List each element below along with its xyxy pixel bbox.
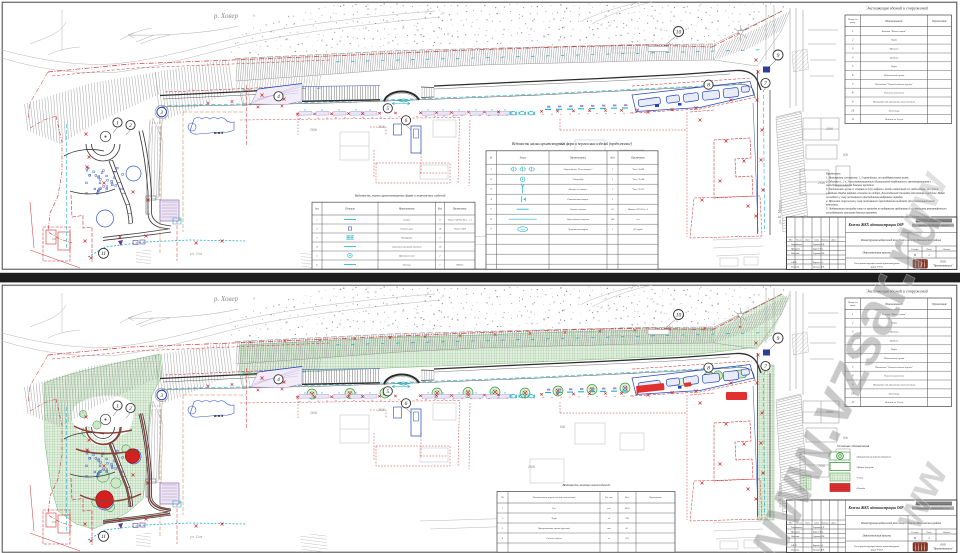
svg-text:Подпись: Подпись bbox=[820, 521, 828, 524]
svg-text:Памятник "Освобождение города": Памятник "Освобождение города" bbox=[874, 83, 914, 86]
svg-text:Скамья садовая: Скамья садовая bbox=[570, 208, 586, 211]
svg-text:"Проектмонтаж": "Проектмонтаж" bbox=[933, 547, 955, 550]
svg-text:- Газон: - Газон bbox=[856, 477, 864, 480]
svg-text:1: 1 bbox=[502, 507, 503, 510]
svg-text:ООО: ООО bbox=[940, 261, 946, 264]
svg-text:Позиция: Позиция bbox=[344, 208, 355, 211]
svg-text:500,00 кв: 500,00 кв bbox=[456, 265, 464, 267]
svg-text:1610: 1610 bbox=[625, 507, 631, 510]
svg-text:Ведомость малых архитектурных: Ведомость малых архитектурных форм и пер… bbox=[512, 141, 633, 146]
svg-text:№п: №п bbox=[314, 208, 319, 211]
svg-text:Примечание: Примечание bbox=[931, 303, 947, 306]
svg-text:Ведомость малых архитектурных: Ведомость малых архитектурных форм и пер… bbox=[355, 193, 446, 198]
svg-text:41: 41 bbox=[626, 527, 628, 530]
svg-text:Примечание: Примечание bbox=[648, 496, 661, 499]
svg-text:ООО: ООО bbox=[940, 544, 946, 547]
svg-text:шт: шт bbox=[607, 527, 611, 530]
svg-text:Нач.отд.: Нач.отд. bbox=[790, 252, 800, 255]
svg-text:Кол.уч: Кол.уч bbox=[795, 239, 801, 241]
svg-text:Пояснительная записка: Пояснительная записка bbox=[862, 535, 892, 538]
svg-text:"Росс" №133: "Росс" №133 bbox=[632, 188, 645, 191]
svg-text:Фонарь со светил.: Фонарь со светил. bbox=[569, 188, 588, 191]
svg-text:Контрробка: Контрробка bbox=[400, 237, 412, 240]
svg-text:Проверил: Проверил bbox=[790, 248, 800, 250]
svg-text:Лестница: Лестница bbox=[888, 109, 900, 112]
svg-text:Кафе: Кафе bbox=[890, 39, 898, 42]
svg-text:Барсов В.А.: Барсов В.А. bbox=[812, 247, 824, 250]
svg-text:1. Нивелировка составлена: 1,: 1. Нивелировка составлена: 1, 3 проводил… bbox=[826, 176, 909, 179]
svg-text:Цветочный стол: Цветочный стол bbox=[398, 255, 414, 258]
svg-text:т: т bbox=[608, 537, 610, 540]
svg-text:Декоративные травы (рулоны): Декоративные травы (рулоны) bbox=[537, 527, 570, 530]
svg-text:Экспликация зданий и сооружени: Экспликация зданий и сооружений bbox=[866, 6, 928, 11]
svg-text:Наименование пород или вид нас: Наименование пород или вид насаждений bbox=[532, 496, 576, 499]
svg-text:Наименование: Наименование bbox=[884, 20, 903, 23]
svg-text:Кафе: Кафе bbox=[890, 65, 898, 68]
svg-text:Проект АРТ-10.1м+2: Проект АРТ-10.1м+2 bbox=[627, 208, 649, 211]
svg-text:м³: м³ bbox=[607, 517, 611, 520]
svg-text:Светильники вечерн.: Светильники вечерн. bbox=[567, 198, 589, 201]
svg-text:Звонница: Звонница bbox=[403, 265, 411, 267]
svg-text:Подпись: Подпись bbox=[820, 238, 828, 241]
svg-text:Барсов В.А.: Барсов В.А. bbox=[812, 530, 824, 533]
svg-text:Г.И.П.: Г.И.П. bbox=[790, 262, 797, 264]
svg-text:1: 1 bbox=[316, 219, 317, 222]
svg-text:Ц2 труба: Ц2 труба bbox=[632, 228, 643, 231]
svg-text:Изм: Изм bbox=[788, 239, 793, 241]
svg-text:"Росс" №608: "Росс" №608 bbox=[632, 168, 645, 171]
svg-text:Площадка под временные автосто: Площадка под временные автостоянки bbox=[872, 101, 916, 104]
svg-text:Разработал: Разработал bbox=[790, 243, 802, 246]
svg-text:последующим выносом боковых пр: последующим выносом боковых проектов. bbox=[826, 184, 875, 187]
svg-text:Кол: Кол bbox=[437, 208, 443, 211]
svg-text:Чугуннаяготоварка: Чугуннаяготоварка bbox=[568, 228, 589, 231]
svg-text:форм Р-501: форм Р-501 bbox=[871, 548, 883, 551]
svg-text:- Клумба: - Клумба bbox=[856, 487, 866, 490]
svg-text:1: 1 bbox=[612, 198, 613, 201]
svg-text:Наименование: Наименование bbox=[569, 157, 587, 160]
svg-text:Ед. изм: Ед. изм bbox=[604, 496, 613, 499]
svg-text:1: 1 bbox=[439, 265, 440, 267]
svg-text:Ролдост цвет: Ролдост цвет bbox=[399, 228, 413, 231]
svg-text:плану: плану bbox=[850, 21, 857, 24]
svg-text:Примечание: Примечание bbox=[452, 208, 467, 211]
svg-text:Участок частного: Участок частного bbox=[884, 375, 905, 378]
svg-text:Листов: Листов bbox=[942, 532, 950, 534]
svg-text:Барсов А.А.: Барсов А.А. bbox=[812, 544, 824, 547]
svg-text:Кол: Кол bbox=[610, 157, 616, 160]
svg-text:Сергеев А.Д.: Сергеев А.Д. bbox=[813, 526, 825, 529]
svg-text:"Балкон" №П-16-1,85см — 1 м: "Балкон" №П-16-1,85см — 1 м bbox=[447, 219, 473, 222]
svg-text:Торф: Торф bbox=[551, 517, 557, 520]
svg-text:Трошин В.В.: Трошин В.В. bbox=[813, 549, 825, 551]
svg-text:Подъём на Спуск: Подъём на Спуск bbox=[884, 118, 904, 121]
svg-text:Барсов А.А.: Барсов А.А. bbox=[812, 261, 824, 264]
svg-text:Туя: Туя bbox=[552, 507, 555, 510]
svg-text:Ограждение газонное: Ограждение газонное bbox=[567, 218, 589, 221]
svg-text:комплекса.: комплекса. bbox=[826, 204, 839, 207]
svg-text:Эскиз: Эскиз bbox=[520, 157, 526, 160]
svg-text:Участок частного: Участок частного bbox=[884, 92, 905, 95]
svg-text:- Декоративные породы (деревья: - Декоративные породы (деревья) bbox=[856, 456, 891, 459]
svg-text:Беседка "Вдоль степи": Беседка "Вдоль степи" bbox=[881, 30, 907, 33]
svg-text:№док: №док bbox=[813, 238, 819, 241]
svg-text:Светофор: Светофор bbox=[573, 178, 584, 181]
svg-text:Газоны семена: Газоны семена bbox=[546, 537, 563, 540]
svg-text:последующими выносами боковых: последующими выносами боковых проектов. bbox=[826, 212, 878, 215]
svg-text:1: 1 bbox=[612, 228, 613, 231]
svg-text:п.м.: п.м. bbox=[636, 219, 640, 221]
svg-text:№: № bbox=[489, 157, 493, 160]
svg-text:Ограждение "Росс-металл": Ограждение "Росс-металл" bbox=[564, 168, 594, 171]
svg-text:"Балкон" №618: "Балкон" №618 bbox=[453, 228, 466, 231]
svg-text:"Росс" №100: "Росс" №100 bbox=[632, 178, 645, 181]
svg-text:- Живая изгородь: - Живая изгородь bbox=[856, 466, 875, 469]
svg-text:Сергеев А.Д.: Сергеев А.Д. bbox=[813, 243, 825, 246]
svg-text:Подъём на Спуск: Подъём на Спуск bbox=[884, 401, 904, 404]
svg-text:Сергеев Л.Б.: Сергеев Л.Б. bbox=[813, 253, 825, 255]
svg-text:Дата: Дата bbox=[830, 522, 836, 524]
svg-text:Магазин: Магазин bbox=[889, 48, 900, 51]
svg-text:Примечание: Примечание bbox=[931, 20, 947, 23]
svg-text:Светильник (на средах обследов: Светильник (на средах обследов) bbox=[392, 246, 422, 249]
svg-text:Наименование: Наименование bbox=[398, 208, 416, 211]
svg-text:Примечание:: Примечание: bbox=[825, 173, 841, 176]
svg-text:Н.контр.: Н.контр. bbox=[790, 266, 800, 268]
svg-text:1: 1 bbox=[612, 178, 613, 181]
svg-text:Лестница: Лестница bbox=[888, 392, 900, 395]
svg-text:Ведомость зеленых насаждений: Ведомость зеленых насаждений bbox=[562, 482, 609, 487]
svg-text:Лист: Лист bbox=[804, 239, 810, 241]
svg-text:Дата: Дата bbox=[830, 239, 836, 241]
svg-text:Трошин В.В.: Трошин В.В. bbox=[813, 266, 825, 268]
svg-text:11: 11 bbox=[439, 220, 441, 222]
svg-text:Скамья: Скамья bbox=[403, 220, 410, 222]
svg-text:Сергеев Л.Б.: Сергеев Л.Б. bbox=[813, 536, 825, 538]
svg-text:Обелисковый архив: Обелисковый архив bbox=[884, 74, 905, 77]
svg-text:Кол: Кол bbox=[624, 496, 629, 499]
svg-text:Примечание: Примечание bbox=[630, 157, 645, 160]
svg-text:Трибуна: Трибуна bbox=[890, 56, 899, 59]
